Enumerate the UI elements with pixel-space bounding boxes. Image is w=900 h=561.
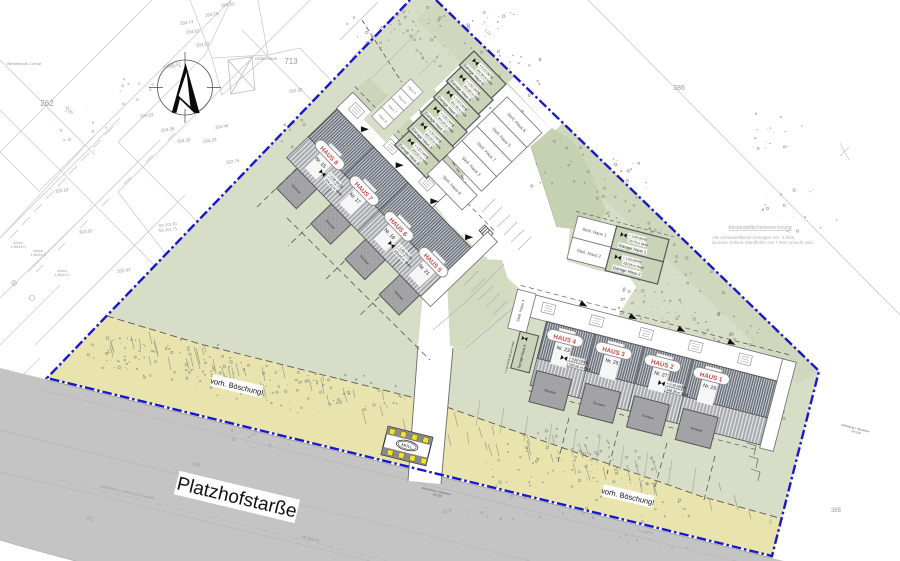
- svg-text:385: 385: [831, 508, 842, 514]
- svg-text:1,85/14,0: 1,85/14,0: [31, 253, 46, 257]
- svg-text:386: 386: [673, 85, 685, 92]
- svg-text:262: 262: [40, 99, 54, 108]
- svg-text:1,85/14,0: 1,85/14,0: [55, 273, 70, 277]
- svg-text:Gartenhaus: Gartenhaus: [255, 56, 277, 61]
- svg-text:713: 713: [284, 57, 298, 66]
- svg-text:da keine höhere Wandhöhe von 7: da keine höhere Wandhöhe von 7,50m errei…: [712, 240, 814, 245]
- svg-text:1,85/14,0: 1,85/14,0: [11, 245, 26, 249]
- svg-text:Westerbeck, Lothar: Westerbeck, Lothar: [7, 61, 42, 66]
- svg-text:Abstandsflächenberechnung: Abstandsflächenberechnung: [728, 225, 792, 231]
